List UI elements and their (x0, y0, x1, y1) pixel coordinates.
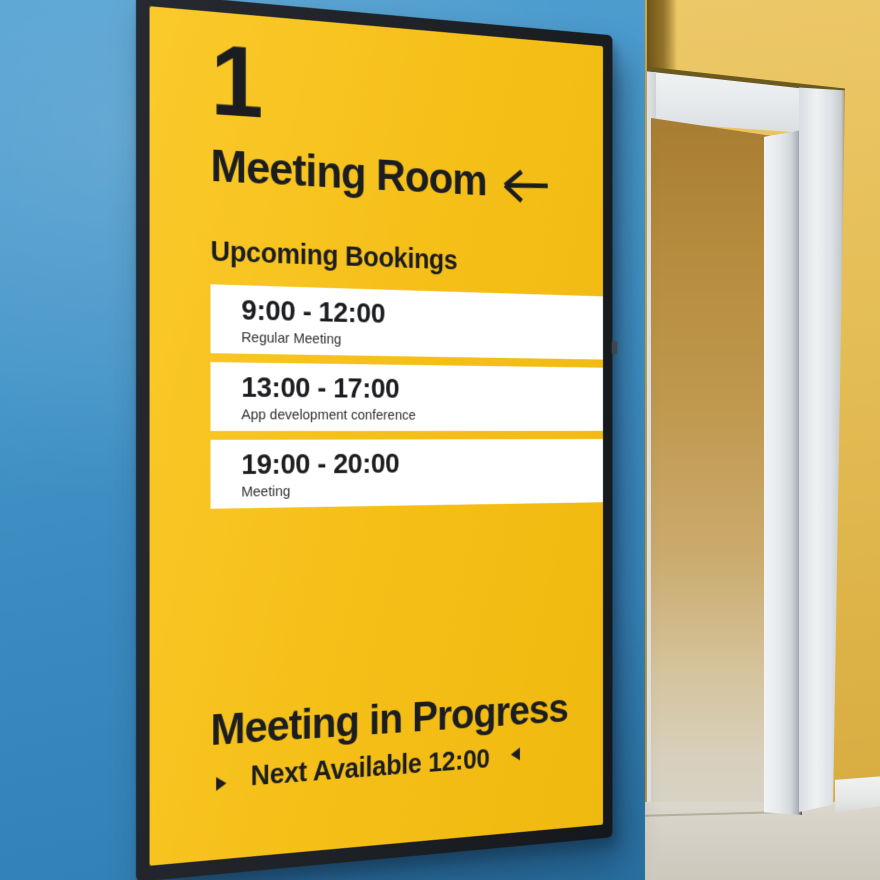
bezel-notch (612, 341, 618, 355)
booking-card[interactable]: 19:00 - 20:00 Meeting (211, 439, 603, 509)
signage-display-area: 1 Meeting Room Upcoming Bookings 9:00 - … (136, 0, 681, 880)
booking-time: 13:00 - 17:00 (241, 371, 595, 407)
booking-card[interactable]: 9:00 - 12:00 Regular Meeting (211, 284, 603, 359)
room-name: Meeting Room (211, 138, 487, 206)
signage-screen[interactable]: 1 Meeting Room Upcoming Bookings 9:00 - … (150, 6, 603, 866)
room-number: 1 (211, 29, 262, 133)
door-leaf[interactable] (764, 130, 802, 815)
booking-card[interactable]: 13:00 - 17:00 App development conference (211, 362, 603, 431)
booking-title: Meeting (241, 479, 595, 500)
booking-list: 9:00 - 12:00 Regular Meeting 13:00 - 17:… (211, 284, 603, 508)
right-triangle-icon[interactable] (216, 776, 226, 791)
door-frame-right (799, 86, 845, 812)
room-name-row: Meeting Room (211, 138, 596, 211)
booking-time: 19:00 - 20:00 (241, 447, 595, 482)
next-available-label: Next Available 12:00 (251, 744, 490, 793)
upcoming-bookings-heading: Upcoming Bookings (211, 236, 458, 277)
booking-title: App development conference (241, 406, 595, 423)
signage-display-bezel: 1 Meeting Room Upcoming Bookings 9:00 - … (136, 0, 612, 880)
left-arrow-icon (500, 163, 551, 206)
scene: 1 Meeting Room Upcoming Bookings 9:00 - … (0, 0, 880, 880)
left-triangle-icon[interactable] (511, 747, 520, 761)
